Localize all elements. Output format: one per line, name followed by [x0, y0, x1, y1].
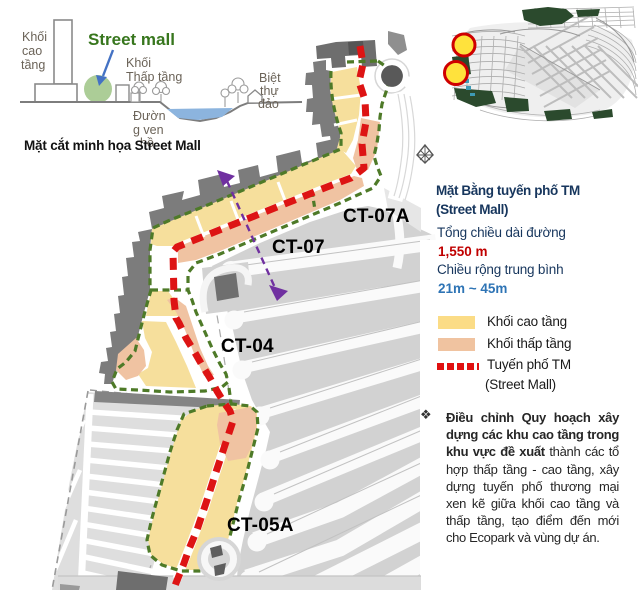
- svg-text:Mặt cắt minh họa Street Mall: Mặt cắt minh họa Street Mall: [24, 138, 201, 153]
- svg-text:CT-07A: CT-07A: [343, 206, 410, 227]
- svg-text:cao: cao: [22, 44, 42, 58]
- svg-text:CT-05A: CT-05A: [227, 515, 294, 536]
- svg-text:Khối: Khối: [22, 30, 47, 44]
- svg-text:Đườn: Đườn: [133, 109, 166, 123]
- svg-text:thự: thự: [260, 84, 279, 98]
- svg-text:Thấp tầng: Thấp tầng: [126, 70, 182, 84]
- svg-text:CT-07: CT-07: [272, 237, 325, 258]
- svg-text:Street mall: Street mall: [88, 30, 175, 49]
- svg-text:Khối: Khối: [126, 56, 151, 70]
- svg-text:CT-04: CT-04: [221, 336, 274, 357]
- svg-text:tầng: tầng: [21, 58, 45, 72]
- svg-text:g ven: g ven: [133, 123, 164, 137]
- svg-text:đảo: đảo: [258, 97, 279, 111]
- svg-text:Biệt: Biệt: [259, 71, 281, 85]
